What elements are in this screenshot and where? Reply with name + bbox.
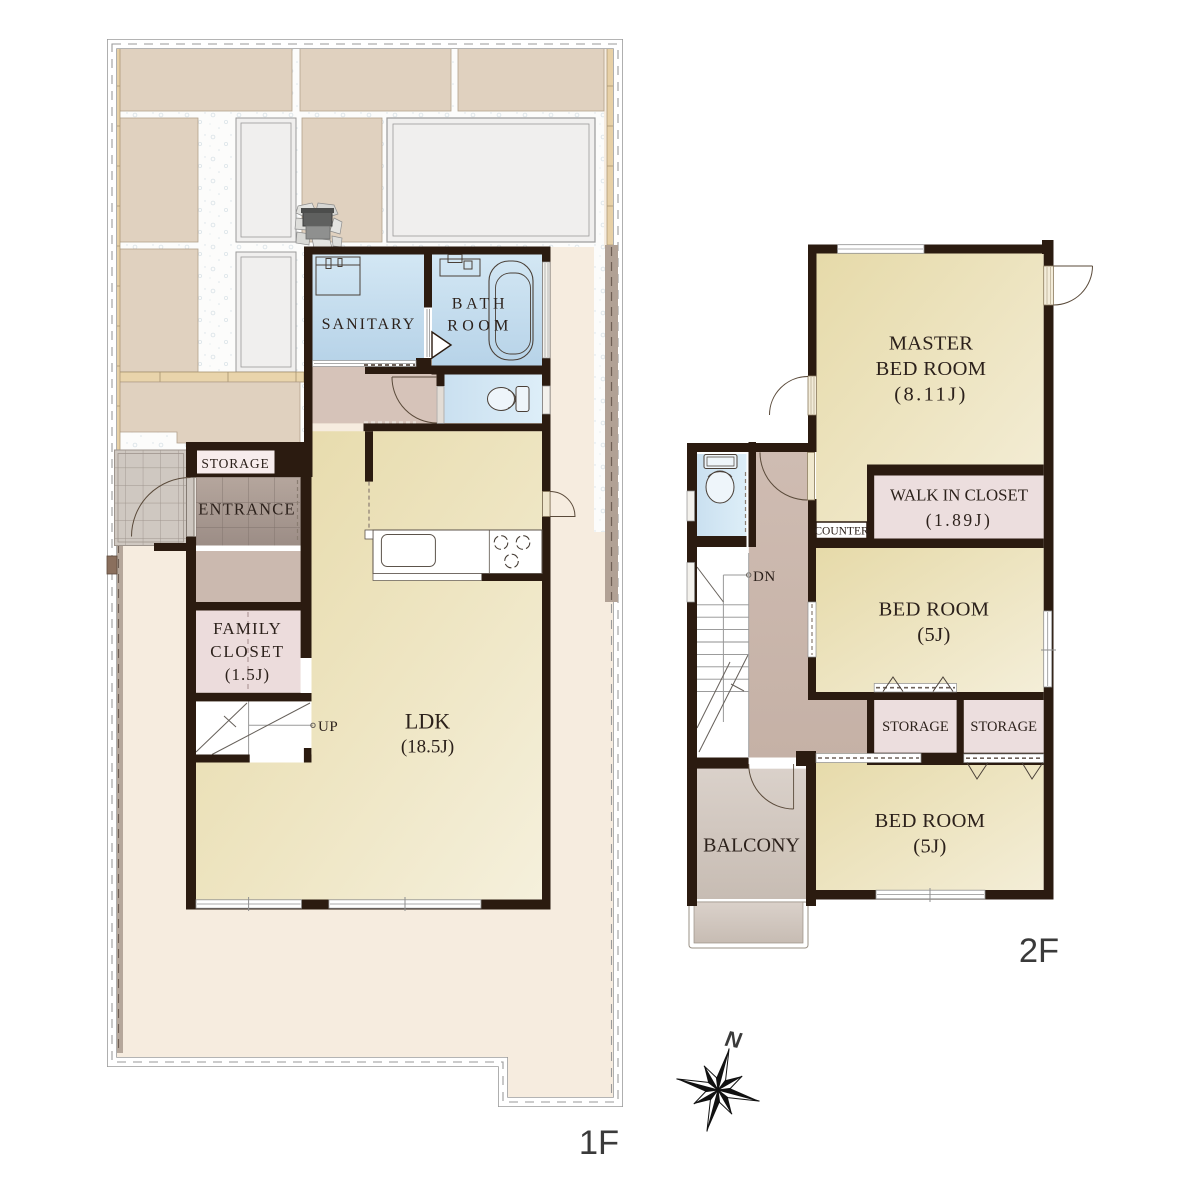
svg-text:2F: 2F (1019, 932, 1059, 970)
svg-text:(1.89J): (1.89J) (926, 510, 993, 530)
svg-text:(5J): (5J) (913, 836, 946, 858)
svg-text:WALK IN CLOSET: WALK IN CLOSET (890, 486, 1028, 505)
svg-text:ROOM: ROOM (447, 318, 513, 335)
svg-text:UP: UP (318, 719, 338, 735)
svg-text:CLOSET: CLOSET (210, 642, 284, 661)
svg-text:STORAGE: STORAGE (201, 456, 269, 471)
svg-text:STORAGE: STORAGE (970, 719, 1037, 735)
svg-text:BED ROOM: BED ROOM (879, 599, 990, 621)
svg-text:STORAGE: STORAGE (882, 719, 949, 735)
svg-text:(5J): (5J) (917, 624, 950, 646)
svg-text:COUNTER: COUNTER (814, 526, 869, 538)
svg-text:SANITARY: SANITARY (322, 316, 417, 333)
svg-text:BALCONY: BALCONY (703, 835, 800, 857)
svg-text:(8.11J): (8.11J) (894, 384, 968, 406)
svg-text:BED ROOM: BED ROOM (876, 358, 987, 380)
svg-text:BED ROOM: BED ROOM (875, 810, 986, 832)
svg-text:1F: 1F (579, 1124, 619, 1162)
svg-text:LDK: LDK (405, 709, 450, 734)
svg-text:ENTRANCE: ENTRANCE (198, 500, 296, 519)
svg-text:MASTER: MASTER (889, 333, 973, 355)
svg-text:(18.5J): (18.5J) (401, 737, 454, 758)
svg-text:(1.5J): (1.5J) (225, 665, 270, 684)
svg-text:FAMILY: FAMILY (213, 619, 282, 638)
svg-text:DN: DN (753, 569, 776, 585)
svg-text:BATH: BATH (452, 296, 509, 313)
